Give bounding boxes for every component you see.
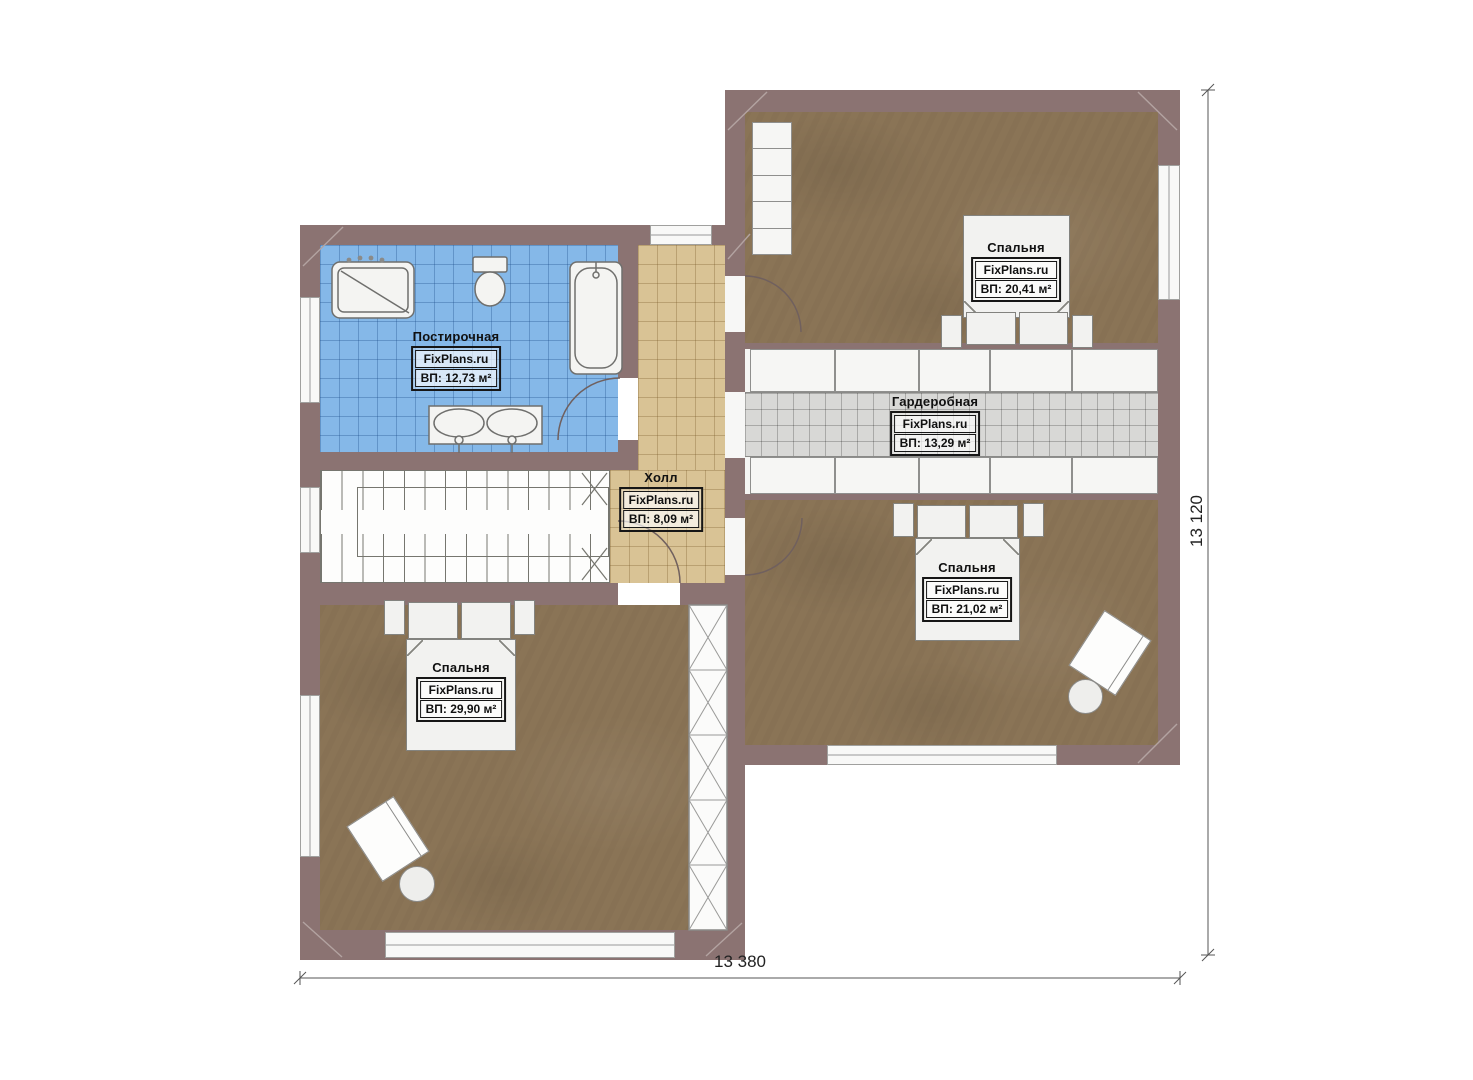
cabinet-divider [918, 458, 920, 493]
room-name: Гардеробная [890, 394, 980, 409]
stair-stringer [357, 487, 609, 557]
chair [399, 866, 435, 902]
brand-text: FixPlans.ru [623, 491, 700, 509]
nightstand [1072, 315, 1093, 348]
wall-right-block-top [725, 90, 1180, 112]
room-name: Спальня [416, 660, 506, 675]
shelf-cell [753, 229, 791, 254]
pillow [408, 602, 458, 639]
room-label-bedroom-right: Спальня FixPlans.ru ВП: 21,02 м² [922, 560, 1012, 622]
cabinet-divider [834, 350, 836, 391]
door-opening [725, 276, 745, 332]
brand-text: FixPlans.ru [975, 261, 1058, 279]
room-label-box: FixPlans.ru ВП: 20,41 м² [971, 257, 1061, 302]
shelf-cell [753, 176, 791, 202]
wall-laundry-hall-upper [618, 245, 638, 378]
door-opening [725, 392, 745, 458]
dimension-line-bottom [294, 971, 1186, 985]
blanket-fold [916, 539, 932, 555]
cabinet-divider [1071, 458, 1073, 493]
room-name: Спальня [922, 560, 1012, 575]
blanket-fold [1003, 539, 1019, 555]
room-label-wardrobe: Гардеробная FixPlans.ru ВП: 13,29 м² [890, 394, 980, 456]
window [300, 487, 320, 553]
shelf-cell [753, 123, 791, 149]
door-opening [725, 518, 745, 575]
cabinet-divider [1071, 350, 1073, 391]
pillow [969, 505, 1018, 538]
area-text: ВП: 20,41 м² [975, 280, 1058, 298]
window [300, 695, 320, 857]
window [827, 745, 1057, 765]
wall-wardrobe-bottom [745, 494, 1158, 500]
area-text: ВП: 13,29 м² [894, 434, 977, 452]
cabinet-divider [834, 458, 836, 493]
shelf-cell [753, 149, 791, 175]
chair [1068, 679, 1103, 714]
area-text: ВП: 12,73 м² [415, 369, 498, 387]
room-label-box: FixPlans.ru ВП: 29,90 м² [416, 677, 506, 722]
room-label-hall: Холл FixPlans.ru ВП: 8,09 м² [619, 470, 703, 532]
wall-laundry-bottom [320, 452, 638, 470]
dimension-width-label: 13 380 [714, 952, 766, 972]
room-label-bedroom-left: Спальня FixPlans.ru ВП: 29,90 м² [416, 660, 506, 722]
room-label-laundry: Постирочная FixPlans.ru ВП: 12,73 м² [411, 329, 501, 391]
brand-text: FixPlans.ru [415, 350, 498, 368]
pillow [461, 602, 511, 639]
dimension-height-label: 13 120 [1187, 495, 1207, 547]
area-text: ВП: 8,09 м² [623, 510, 700, 528]
pillow [966, 312, 1016, 345]
cabinet-divider [918, 350, 920, 391]
window [1158, 165, 1180, 300]
nightstand [1023, 503, 1044, 537]
room-label-box: FixPlans.ru ВП: 13,29 м² [890, 411, 980, 456]
room-name: Холл [619, 470, 703, 485]
blanket-fold [499, 640, 515, 656]
nightstand [893, 503, 914, 537]
wardrobe-cabinet-row-top [750, 349, 1158, 392]
window [650, 225, 712, 245]
staircase [320, 470, 610, 583]
wardrobe-cabinet-row-bottom [750, 457, 1158, 494]
room-name: Постирочная [411, 329, 501, 344]
blanket-fold [407, 640, 423, 656]
window [300, 297, 320, 403]
pillow [1019, 312, 1068, 345]
shelf-unit [752, 122, 792, 255]
shelf-cell [753, 202, 791, 228]
nightstand [514, 600, 535, 635]
pillow [917, 505, 966, 538]
room-label-box: FixPlans.ru ВП: 21,02 м² [922, 577, 1012, 622]
area-text: ВП: 29,90 м² [420, 700, 503, 718]
floor-plan: Постирочная FixPlans.ru ВП: 12,73 м² Хол… [0, 0, 1473, 1080]
room-label-bedroom-top: Спальня FixPlans.ru ВП: 20,41 м² [971, 240, 1061, 302]
cabinet-divider [989, 350, 991, 391]
room-name: Спальня [971, 240, 1061, 255]
room-label-box: FixPlans.ru ВП: 8,09 м² [619, 487, 703, 532]
room-label-box: FixPlans.ru ВП: 12,73 м² [411, 346, 501, 391]
wall-stairs-bedroom-right [680, 583, 725, 605]
cabinet-divider [989, 458, 991, 493]
nightstand [941, 315, 962, 348]
nightstand [384, 600, 405, 635]
area-text: ВП: 21,02 м² [926, 600, 1009, 618]
hall-floor-upper [638, 245, 725, 470]
brand-text: FixPlans.ru [420, 681, 503, 699]
brand-text: FixPlans.ru [894, 415, 977, 433]
window [385, 932, 675, 958]
brand-text: FixPlans.ru [926, 581, 1009, 599]
